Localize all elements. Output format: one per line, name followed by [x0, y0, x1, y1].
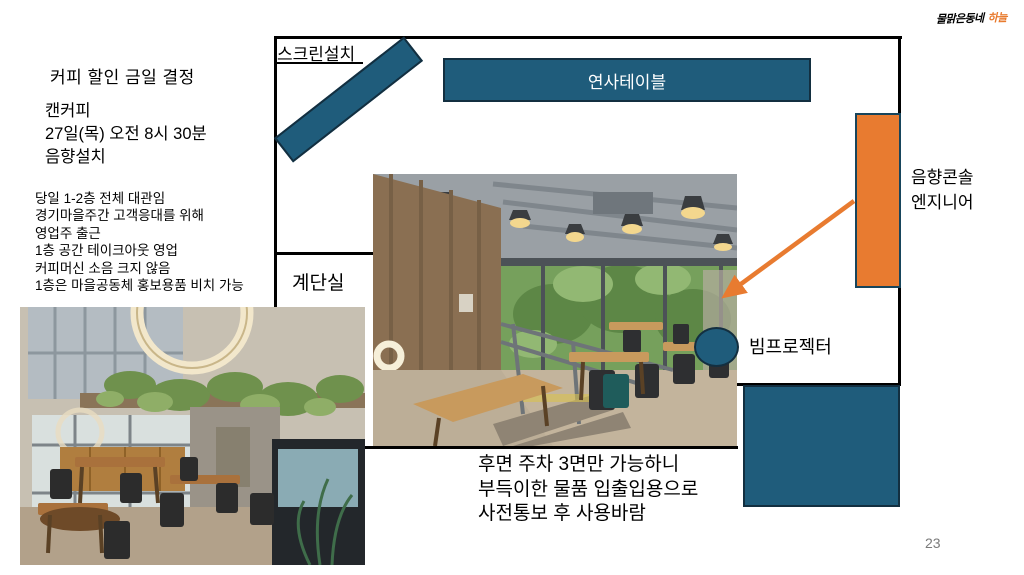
schedule-line-1: 캔커피 [45, 100, 207, 123]
notes-block: 당일 1-2층 전체 대관임 경기마을주간 고객응대를 위해 영업주 출근 1층… [35, 190, 244, 294]
sound-console-label-line1: 음향콘솔 [911, 165, 974, 190]
brand-logo-accent: 하늘 [987, 11, 1006, 24]
cafe-photo-first-floor [20, 307, 365, 565]
speaker-table-label: 연사테이블 [588, 68, 666, 93]
plan-stairwell-divider [274, 252, 374, 255]
speaker-table-shape: 연사테이블 [443, 58, 811, 102]
slide-title: 커피 할인 금일 결정 [50, 63, 195, 88]
rear-block-shape [743, 385, 900, 507]
note-line-5: 커피머신 소음 크지 않음 [35, 260, 244, 277]
note-line-1: 당일 1-2층 전체 대관임 [35, 190, 244, 207]
note-line-3: 영업주 출근 [35, 225, 244, 242]
parking-note: 후면 주차 3면만 가능하니 부득이한 물품 입출입용으로 사전통보 후 사용바… [478, 453, 698, 527]
note-line-4: 1층 공간 테이크아웃 영업 [35, 242, 244, 259]
sound-console-label-line2: 엔지니어 [911, 190, 974, 215]
sound-console-shape [855, 113, 901, 288]
schedule-block: 캔커피 27일(목) 오전 8시 30분 음향설치 [45, 100, 207, 169]
screen-label: 스크린설치 [277, 40, 355, 65]
brand-logo: 물맑은동네하늘 [936, 9, 1007, 27]
parking-note-line1: 후면 주차 3면만 가능하니 [478, 453, 698, 478]
brand-logo-main: 물맑은동네 [936, 12, 984, 26]
projector-label: 빔프로젝터 [749, 333, 832, 359]
stairwell-label: 계단실 [292, 268, 344, 295]
projector-shape [694, 327, 739, 367]
parking-note-line3: 사전통보 후 사용바람 [478, 502, 698, 527]
plan-wall-left [274, 36, 277, 310]
plan-wall-top [274, 36, 902, 39]
note-line-2: 경기마을주간 고객응대를 위해 [35, 207, 244, 224]
page-number: 23 [925, 535, 941, 551]
cafe-photo-second-floor [373, 174, 737, 446]
schedule-line-2: 27일(목) 오전 8시 30분 [45, 123, 207, 146]
parking-note-line2: 부득이한 물품 입출입용으로 [478, 478, 698, 503]
plan-wall-bottom-center [365, 446, 738, 449]
schedule-line-3: 음향설치 [45, 146, 207, 169]
note-line-6: 1층은 마을공동체 홍보용품 비치 가능 [35, 277, 244, 294]
sound-console-label: 음향콘솔 엔지니어 [911, 165, 974, 215]
